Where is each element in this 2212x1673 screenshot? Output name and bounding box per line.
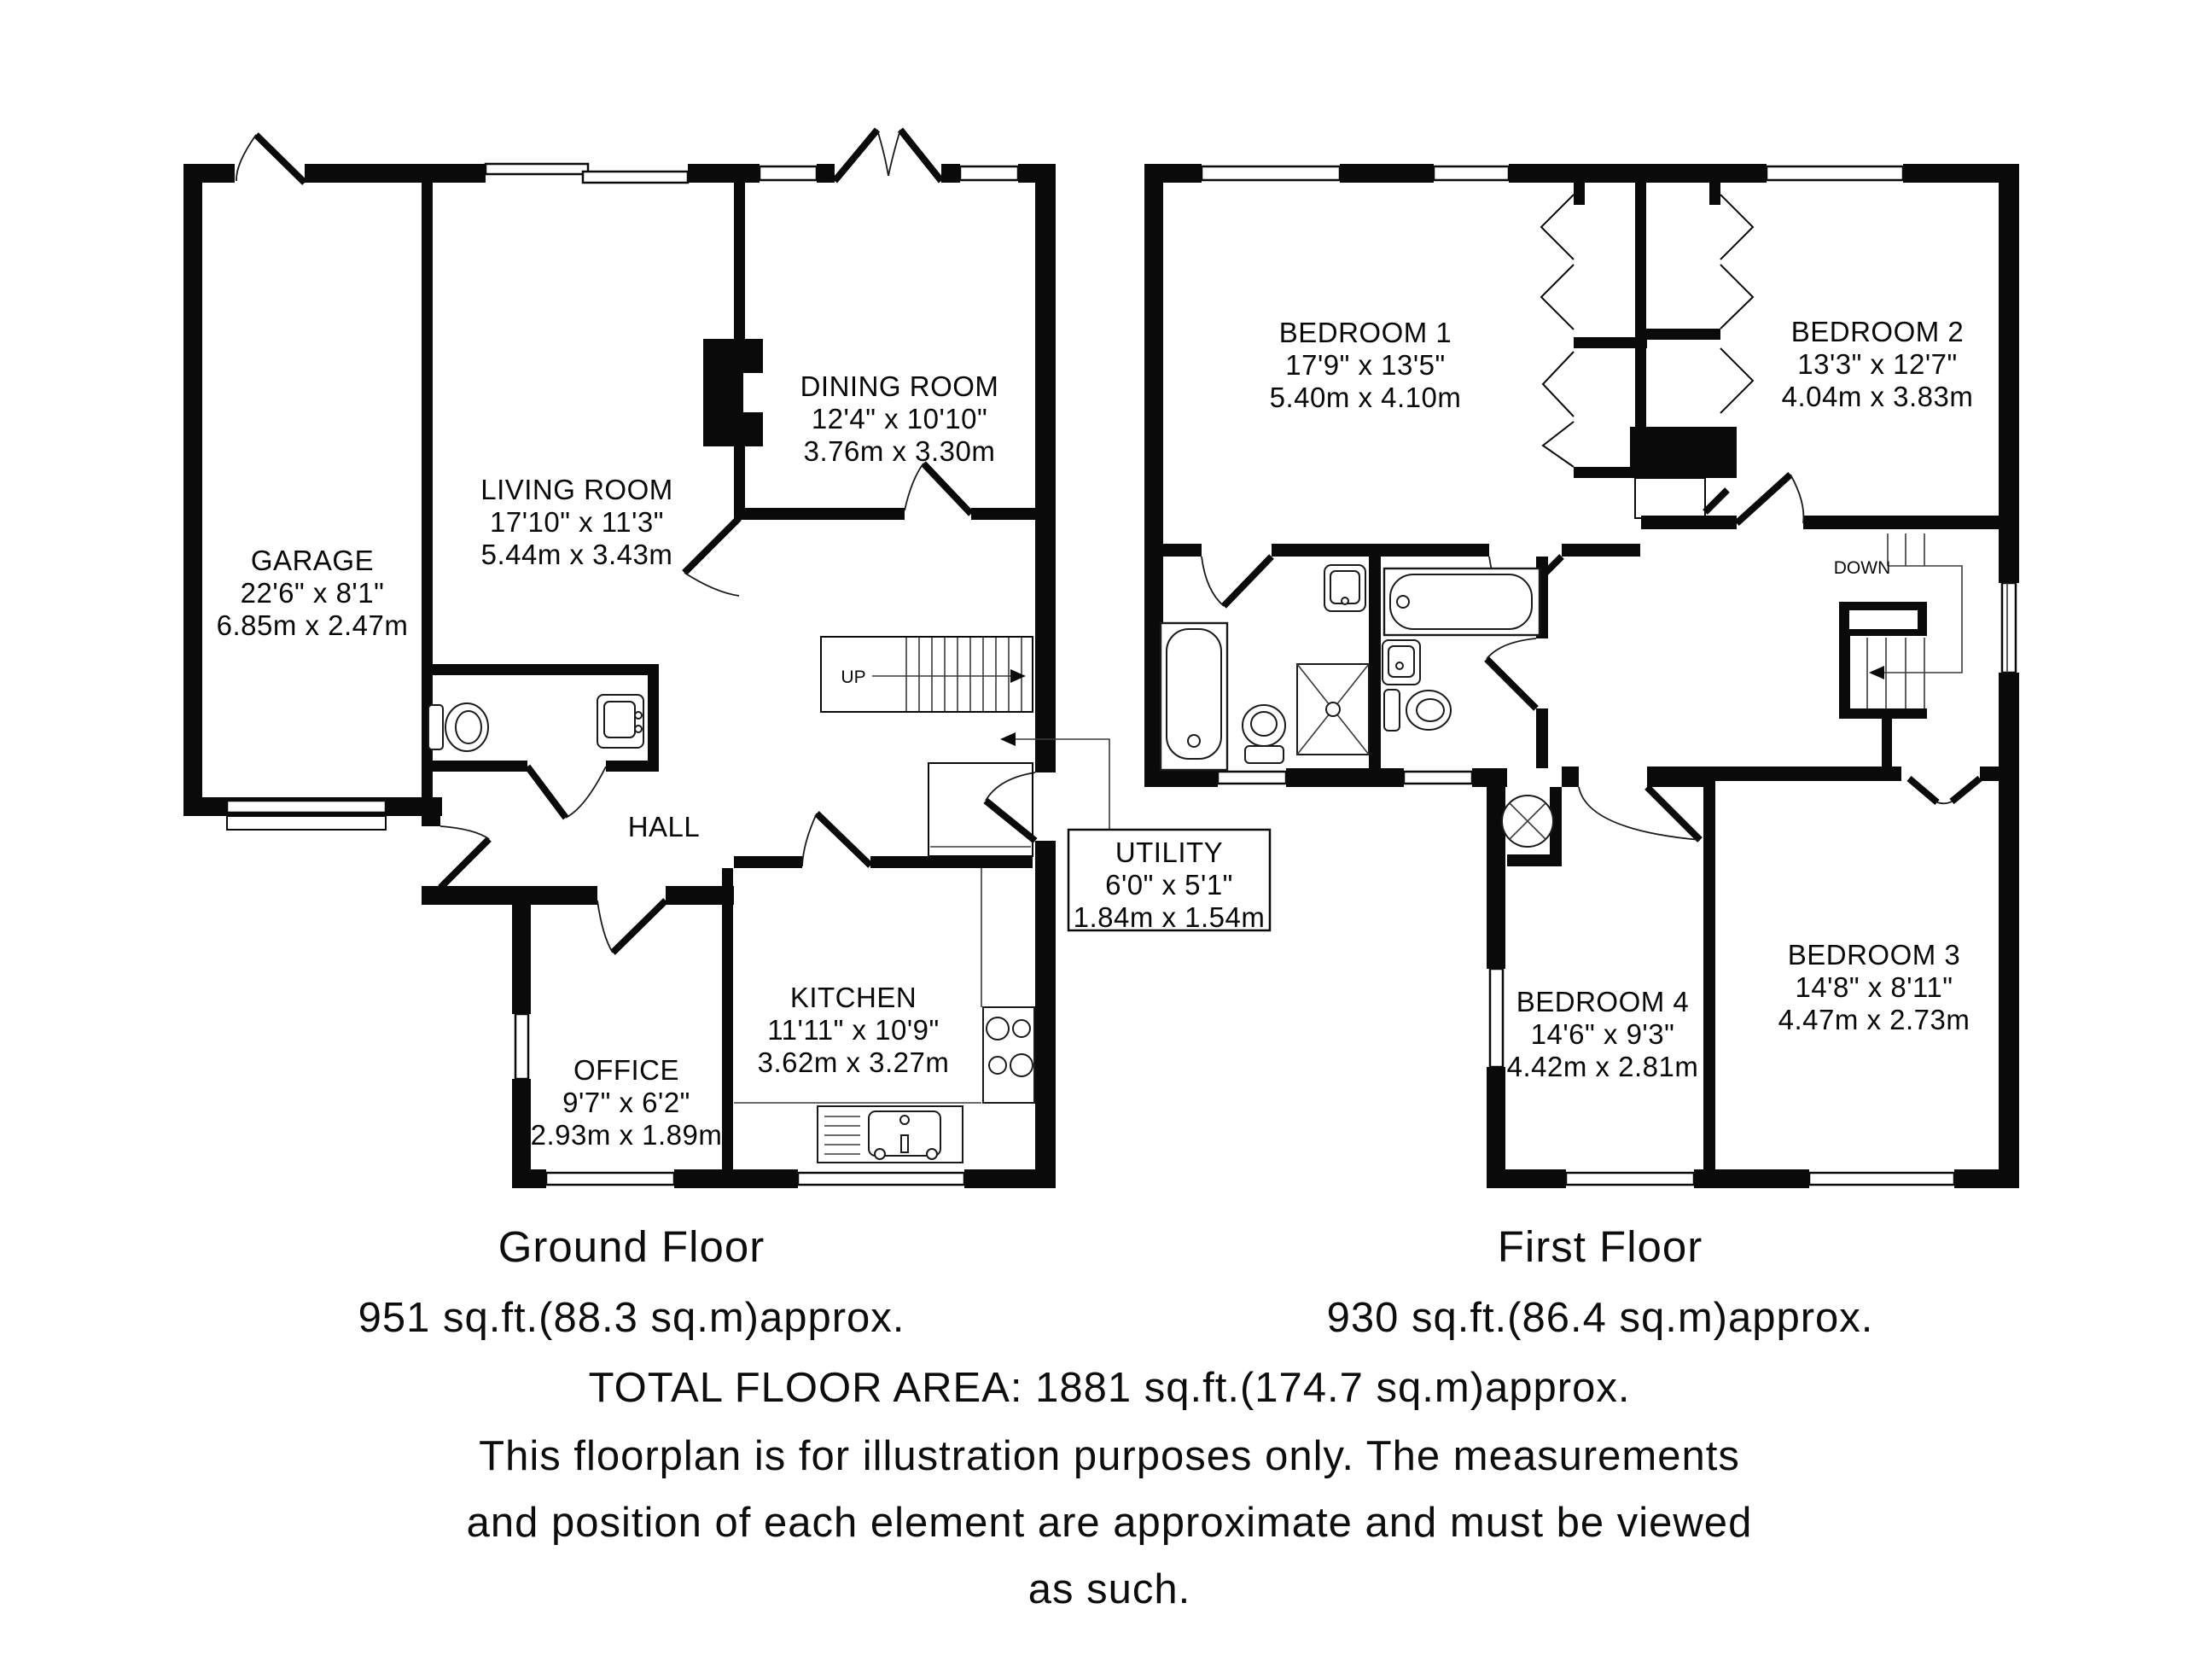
utility-metric: 1.84m x 1.54m: [1074, 901, 1266, 933]
bedroom1-name: BEDROOM 1: [1279, 317, 1452, 348]
bedroom2-name: BEDROOM 2: [1791, 316, 1965, 347]
office-imperial: 9'7" x 6'2": [562, 1087, 690, 1118]
dining-room-imperial: 12'4" x 10'10": [812, 403, 987, 434]
disclaimer-line-3: as such.: [1028, 1566, 1190, 1612]
bedroom3-name: BEDROOM 3: [1788, 939, 1961, 971]
bedroom2-metric: 4.04m x 3.83m: [1782, 381, 1974, 412]
first-floor-area: 930 sq.ft.(86.4 sq.m)approx.: [1327, 1295, 1874, 1341]
ensuite-sink-icon: [1324, 565, 1365, 611]
dining-room-name: DINING ROOM: [800, 370, 999, 402]
utility-name: UTILITY: [1115, 836, 1223, 868]
garage-name: GARAGE: [251, 545, 374, 576]
utility-imperial: 6'0" x 5'1": [1105, 869, 1233, 901]
floorplan-page: UP: [0, 0, 2212, 1673]
living-room-metric: 5.44m x 3.43m: [481, 539, 673, 570]
living-room-name: LIVING ROOM: [480, 474, 673, 505]
sink-icon: [597, 695, 643, 748]
bedroom3-metric: 4.47m x 2.73m: [1778, 1004, 1970, 1035]
dining-room-metric: 3.76m x 3.30m: [804, 435, 996, 467]
garage-imperial: 22'6" x 8'1": [241, 577, 385, 609]
bedroom1-imperial: 17'9" x 13'5": [1285, 349, 1445, 381]
bedroom3-imperial: 14'8" x 8'11": [1795, 971, 1953, 1003]
floorplan-drawing: UP: [0, 0, 2212, 1673]
ground-floor-title: Ground Floor: [498, 1222, 765, 1271]
total-floor-area: TOTAL FLOOR AREA: 1881 sq.ft.(174.7 sq.m…: [589, 1365, 1631, 1411]
living-room-imperial: 17'10" x 11'3": [490, 506, 664, 538]
kitchen-name: KITCHEN: [790, 982, 917, 1013]
kitchen-metric: 3.62m x 3.27m: [758, 1046, 950, 1078]
first-floor-plan: DOWN: [1144, 164, 2019, 1188]
footer: Ground Floor 951 sq.ft.(88.3 sq.m)approx…: [358, 1222, 1874, 1612]
up-label: UP: [841, 667, 865, 687]
office-metric: 2.93m x 1.89m: [531, 1119, 723, 1151]
ensuite-bath-icon: [1161, 623, 1227, 770]
disclaimer-line-2: and position of each element are approxi…: [467, 1500, 1753, 1546]
bedroom1-metric: 5.40m x 4.10m: [1270, 382, 1462, 413]
bathroom-sink-icon: [1382, 640, 1420, 685]
hall-name: HALL: [628, 811, 701, 842]
office-name: OFFICE: [573, 1054, 679, 1086]
bedroom4-metric: 4.42m x 2.81m: [1507, 1051, 1699, 1082]
bathroom-bath-icon: [1384, 568, 1540, 635]
toilet-icon: [428, 703, 488, 751]
bedroom4-imperial: 14'6" x 9'3": [1531, 1018, 1675, 1050]
ensuite-toilet-icon: [1243, 705, 1285, 763]
ground-floor-area: 951 sq.ft.(88.3 sq.m)approx.: [358, 1295, 905, 1341]
cylinder-icon: [1502, 796, 1553, 847]
ground-floor-plan: UP: [183, 130, 1270, 1188]
utility-arrow: [1000, 732, 1016, 746]
kitchen-imperial: 11'11" x 10'9": [767, 1014, 939, 1046]
disclaimer-line-1: This floorplan is for illustration purpo…: [479, 1433, 1740, 1479]
hob-icon: [983, 1007, 1034, 1103]
garage-metric: 6.85m x 2.47m: [217, 609, 409, 641]
bedroom4-name: BEDROOM 4: [1516, 986, 1690, 1017]
bathroom-toilet-icon: [1384, 690, 1451, 731]
ground-stairs-up: UP: [821, 637, 1033, 856]
down-arrow: [1869, 666, 1884, 679]
up-arrow: [1010, 669, 1026, 683]
first-floor-title: First Floor: [1498, 1222, 1703, 1271]
down-label: DOWN: [1834, 558, 1891, 578]
shower-icon: [1297, 664, 1369, 755]
bedroom2-imperial: 13'3" x 12'7": [1797, 348, 1957, 380]
